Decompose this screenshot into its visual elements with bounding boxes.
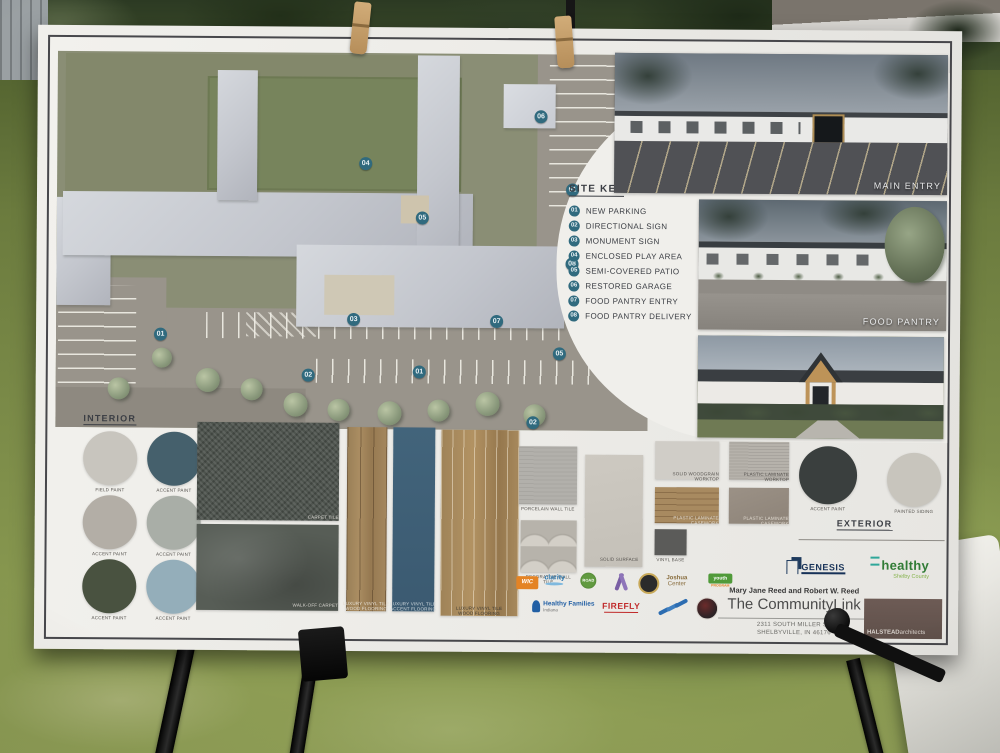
tree [377, 401, 401, 425]
plan-marker: 04 [359, 157, 372, 170]
tree [241, 378, 263, 400]
swatch-caption: LUXURY VINYL TILE ACCENT FLOORING [388, 601, 438, 612]
paint-swatch [83, 495, 137, 549]
swatch-caption: VINYL BASE [646, 557, 694, 563]
paint-swatch [887, 453, 941, 507]
rendering-main-entry: MAIN ENTRY [614, 53, 948, 195]
swatch-caption: WALK-OFF CARPET [196, 602, 338, 608]
key-label: SEMI-COVERED PATIO [585, 267, 679, 277]
photo-label: FOOD PANTRY [863, 317, 940, 328]
rendering-food-pantry: FOOD PANTRY [698, 199, 947, 331]
swatch-caption: ACCENT PAINT [82, 551, 136, 557]
swatch-caption: ACCENT PAINT [147, 488, 201, 494]
lvt-wood-swatch [346, 427, 387, 611]
walk-off-carpet-swatch [196, 524, 339, 611]
tree-silhouette [698, 199, 769, 241]
credits-block: GENESIS healthy Shelby County Mary Jane … [694, 555, 945, 641]
tree [327, 399, 349, 421]
wic-mark: WIC [516, 576, 538, 589]
tree [152, 348, 172, 368]
paint-swatch [82, 559, 136, 613]
clarity-logo: clarity [544, 574, 565, 585]
courtyard-patio [324, 275, 394, 315]
tree-silhouette [614, 53, 693, 106]
swatch-caption: FIELD PAINT [83, 487, 137, 493]
key-number-badge: 08 [568, 310, 579, 321]
road-logo: ROAD [580, 573, 596, 589]
walkway [795, 420, 859, 438]
tree [475, 392, 499, 416]
plan-marker: 06 [535, 110, 548, 123]
joshua-center-logo: Joshua Center [666, 575, 687, 587]
healthy-bars-icon [870, 557, 879, 566]
firefly-logo: FIREFLY [602, 601, 640, 613]
healthy-text: healthy [881, 558, 929, 573]
rendering-front-elevation [697, 335, 944, 439]
clothespin [554, 15, 575, 68]
halstead-rest: architects [900, 630, 926, 636]
swatch-caption: PAINTED SIDING [887, 509, 941, 515]
paint-swatch [83, 431, 137, 485]
swatch-caption: PLASTIC LAMINATE CASEWORK [655, 515, 719, 526]
parking-stripes-row2 [316, 359, 606, 385]
swatch-caption: ACCENT PAINT [146, 552, 200, 558]
tree [283, 393, 307, 417]
swatch-caption: PLASTIC LAMINATE CASEWORK [729, 516, 789, 527]
clarity-text: clarity [544, 574, 565, 581]
entry-post [806, 382, 810, 406]
wing-bar [674, 598, 688, 608]
decorative-tile-swatch [520, 520, 576, 572]
firefly-text: FIREFLY [602, 601, 640, 611]
genesis-building-icon [786, 560, 798, 574]
paint-swatch [799, 446, 857, 504]
plan-marker: 05 [416, 211, 429, 224]
healthy-families-logo: Healthy Families Indiana [532, 600, 594, 612]
carpet-tile-swatch [197, 422, 340, 521]
interior-title: INTERIOR [83, 413, 136, 425]
genesis-logo: GENESIS [786, 560, 845, 574]
key-label: RESTORED GARAGE [585, 282, 672, 292]
key-number-badge: 03 [569, 235, 580, 246]
healthy-logo: healthy Shelby County [870, 557, 929, 580]
hf-figure-icon [532, 600, 540, 612]
firefly-rule [604, 612, 638, 613]
restored-garage [503, 84, 555, 128]
plan-marker: 03 [347, 313, 360, 326]
lvt-accent-swatch [392, 427, 435, 611]
hf-sub: Indiana [543, 607, 594, 612]
paint-swatch [146, 560, 200, 614]
donor-names: Mary Jane Reed and Robert W. Reed [694, 585, 894, 595]
lvt-wood-wide-swatch [440, 430, 519, 617]
key-number-badge: 05 [568, 265, 579, 276]
joshua-text2: Center [668, 581, 686, 587]
halstead-bold: HALSTEAD [867, 630, 900, 636]
clarity-swoosh [546, 582, 564, 585]
vinyl-base-swatch [655, 529, 687, 555]
key-number-badge: 02 [569, 220, 580, 231]
presentation-board: 04 06 01 05 08 03 07 05 02 01 02 01 SITE… [34, 25, 962, 655]
gable-entry-timber [805, 360, 837, 382]
key-label: MONUMENT SIGN [586, 237, 660, 247]
tree [108, 377, 130, 399]
building-wing-north [217, 70, 258, 200]
wall-tile-swatch [519, 446, 577, 504]
key-number-badge: 04 [569, 250, 580, 261]
paint-swatch [147, 496, 201, 550]
swatch-caption: LUXURY VINYL TILE WOOD FLOORING [342, 601, 390, 612]
healthy-sub-text: Shelby County [870, 574, 929, 580]
swatch-caption: ACCENT PAINT [799, 506, 857, 512]
shrub-strip [697, 403, 943, 421]
key-number-badge: 01 [569, 205, 580, 216]
windows [707, 253, 875, 265]
swatch-caption: PORCELAIN WALL TILE [519, 506, 577, 512]
easel-clamp [298, 626, 348, 682]
windows [630, 121, 800, 134]
swatch-caption: SOLID WOODGRAIN WORKTOP [655, 471, 719, 482]
board-frame: 04 06 01 05 08 03 07 05 02 01 02 01 SITE… [44, 35, 952, 645]
swatch-caption: ACCENT PAINT [82, 615, 136, 621]
swatch-caption: LUXURY VINYL TILE WOOD FLOORING [448, 606, 510, 617]
building-wing-east [417, 55, 460, 267]
swatch-caption: PLASTIC LAMINATE WORKTOP [729, 472, 789, 483]
key-label: DIRECTIONAL SIGN [586, 222, 668, 232]
plan-marker: 05 [553, 347, 566, 360]
photo-label: MAIN ENTRY [874, 181, 941, 191]
entry-post [832, 382, 836, 406]
plan-marker: 02 [526, 416, 539, 429]
awareness-ribbon-icon [614, 573, 628, 591]
exterior-title: EXTERIOR [837, 518, 893, 530]
key-label: ENCLOSED PLAY AREA [586, 252, 683, 262]
plan-marker: 07 [490, 315, 503, 328]
key-number-badge: 06 [568, 280, 579, 291]
exterior-rule [799, 539, 945, 541]
road-mark: ROAD [580, 573, 596, 589]
plan-marker: 01 [413, 365, 426, 378]
key-label: FOOD PANTRY DELIVERY [585, 312, 692, 322]
swatch-caption: ACCENT PAINT [146, 616, 200, 622]
key-number-badge: 07 [568, 295, 579, 306]
swatch-caption: CARPET TILE [197, 514, 339, 520]
tree [427, 400, 449, 422]
solid-surface-swatch [584, 455, 643, 567]
genesis-text: GENESIS [801, 562, 845, 574]
key-label: FOOD PANTRY ENTRY [585, 297, 678, 307]
plan-marker: 01 [154, 328, 167, 341]
halstead-architects-box: HALSTEADarchitects [864, 599, 942, 640]
wic-logo: WIC [516, 576, 538, 589]
wings-logo-icon [658, 601, 686, 617]
swatch-caption: SOLID SURFACE [584, 557, 638, 563]
photo-of-presentation-board: 04 06 01 05 08 03 07 05 02 01 02 01 SITE… [0, 0, 1000, 753]
foreground-tree [884, 207, 945, 283]
tree [196, 368, 220, 392]
entry-door [812, 114, 844, 144]
paint-swatch [147, 432, 201, 486]
tree-silhouette [873, 53, 948, 101]
plan-marker: 02 [302, 369, 315, 382]
shrub-row [698, 271, 898, 281]
key-label: NEW PARKING [586, 207, 647, 216]
seal-emblem-icon [638, 573, 659, 594]
